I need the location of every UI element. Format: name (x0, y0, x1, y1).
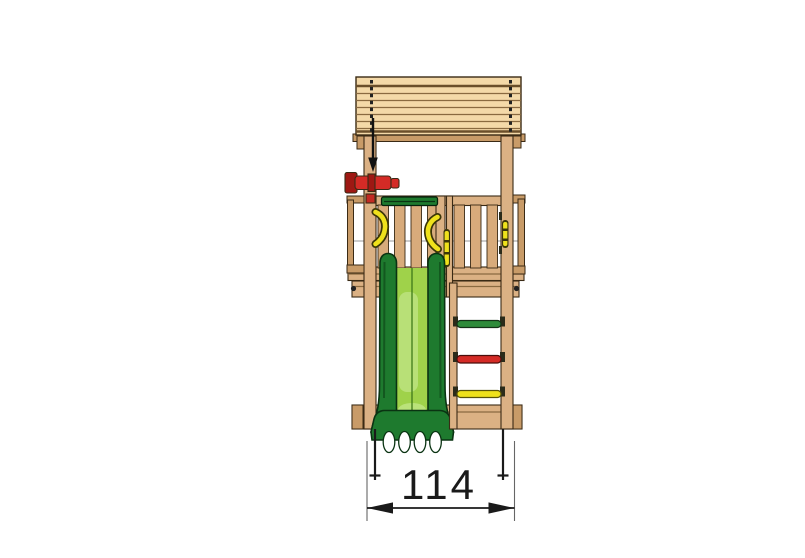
right-frame-strip (518, 199, 525, 273)
left-frame-bottom (347, 265, 364, 273)
dimension-arrow-left (367, 502, 393, 513)
handle-bar-right-post (502, 220, 509, 248)
handle-bar (503, 222, 507, 246)
slide-foot-apron (371, 411, 454, 441)
telescope-bracket (366, 194, 375, 203)
apron-arch (430, 432, 442, 453)
slide-rail-shade-right (440, 262, 441, 398)
railing-slat (454, 205, 465, 268)
right-post-hinge-lower (499, 246, 502, 254)
bolt-right (514, 286, 519, 291)
base-foot-left (352, 405, 363, 429)
apron-arch (414, 432, 426, 453)
ladder-rung-red (457, 356, 501, 364)
apron-arch (399, 432, 411, 453)
handle-bar-segment (502, 239, 509, 242)
roof-support-stub-right (513, 136, 521, 148)
slide-rail-shade-left (384, 262, 385, 398)
handle-bar-segment (444, 252, 451, 255)
drawing-canvas: 114 (0, 0, 805, 558)
right-post (501, 136, 513, 429)
dimension-label: 114 (401, 461, 477, 508)
ladder-rung-green (457, 321, 501, 328)
right-post-hinge-upper (499, 212, 502, 220)
right-frame-bottom (513, 266, 525, 274)
bolt-left (351, 286, 356, 291)
apron-arch (383, 432, 395, 453)
handle-bar (445, 231, 449, 265)
handle-bar-segment (444, 240, 451, 243)
dimension-arrow-right (489, 502, 515, 513)
roof (353, 77, 525, 142)
telescope-mount-ring (368, 174, 375, 192)
slide-bed-highlight (399, 292, 418, 392)
left-frame-strip (348, 200, 354, 273)
telescope-knob (391, 179, 399, 189)
railing-slat (487, 205, 498, 268)
railing-slat (411, 205, 422, 268)
slide-entry-bar (382, 197, 438, 206)
railing-slat (471, 205, 482, 268)
playground-tower-front-elevation: 114 (0, 0, 805, 558)
ladder-rung-yellow (457, 391, 501, 398)
slide (371, 254, 454, 453)
handle-bar-segment (502, 229, 509, 232)
